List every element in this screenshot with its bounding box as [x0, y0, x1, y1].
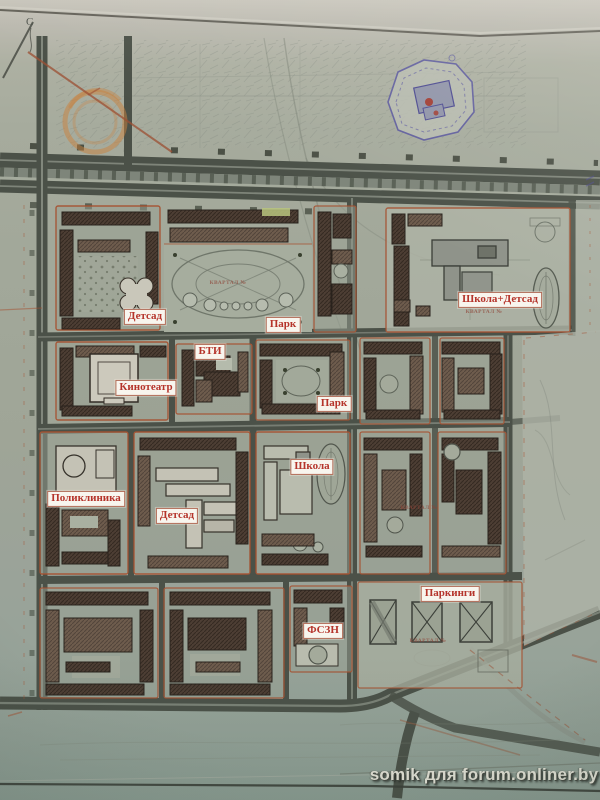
- north-arrow-tail: [30, 28, 31, 52]
- block-bti: [176, 344, 252, 414]
- park: [164, 244, 312, 332]
- block-bottom-left-2: [164, 588, 284, 698]
- block-courtyard-1: [256, 340, 350, 420]
- block-upper-strip: [168, 208, 298, 242]
- block-fszn: [290, 586, 352, 672]
- block-polyclinic: [40, 432, 128, 574]
- block-bottom-left-1: [40, 588, 158, 698]
- top-faded-area: [3, 22, 558, 150]
- block-parking: [358, 582, 522, 688]
- block-residential-se-1: [360, 432, 430, 574]
- block-narrow-center: [314, 206, 356, 332]
- masterplan-drawing: С: [0, 0, 600, 800]
- block-school-2: [256, 432, 350, 574]
- block-detsad-1: [56, 206, 160, 330]
- block-cinema: [56, 342, 168, 420]
- block-school-detsad: [386, 208, 570, 332]
- table-edge-line: [0, 784, 600, 791]
- block-residential-ne-1: [360, 338, 430, 424]
- marker-highlight: [262, 208, 290, 216]
- red-pen-dot: [425, 98, 433, 106]
- school-2-building: [264, 446, 312, 520]
- polyclinic-building: [56, 446, 116, 494]
- block-detsad-2: [134, 432, 250, 574]
- block-residential-se-2: [438, 432, 506, 574]
- masterplan-photo: С ДетсадПаркБТИКинотеатрШкола+ДетсадПарк…: [0, 0, 600, 800]
- sheet-edge-line: [3, 22, 33, 78]
- watermark: somik для forum.onliner.by: [370, 765, 598, 785]
- block-residential-ne-2: [440, 338, 504, 424]
- red-pen-dot: [434, 111, 439, 116]
- cinema-building: [90, 354, 138, 404]
- paper-fold: [0, 7, 600, 36]
- north-label: С: [26, 16, 33, 28]
